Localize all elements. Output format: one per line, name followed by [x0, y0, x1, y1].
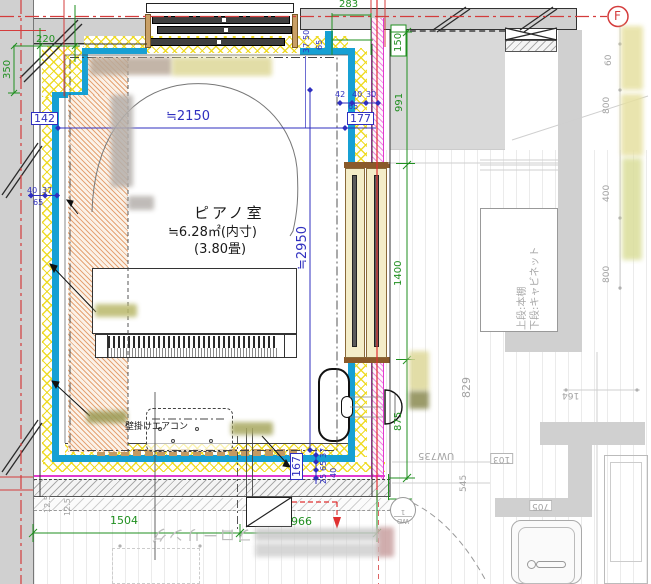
window-notch-2 [224, 28, 228, 32]
dim-164: 164 [562, 390, 579, 399]
blurred-label [255, 543, 381, 557]
insulation-topleft-step [42, 46, 84, 97]
ac-dot-2 [171, 439, 175, 443]
faint-fixture [112, 548, 200, 584]
dim-65: 65 [348, 103, 358, 111]
dim-1504: 1504 [110, 515, 138, 526]
dim-800: 800 [603, 97, 612, 114]
dim-37: 37 [303, 43, 311, 53]
window-cap-right [292, 14, 298, 48]
neighbor-wall-bottom-hatch [34, 479, 390, 497]
shelf-lower-label: 下段:キャビネット [529, 247, 542, 330]
wallfinish-bottom [52, 455, 355, 462]
blurred-label [622, 158, 642, 260]
dim-37: 37 [42, 187, 52, 195]
blurred-label [621, 26, 643, 90]
dim-65: 65 [320, 461, 328, 471]
insulation-right-lower [355, 363, 367, 457]
door-leaf-2-panel [374, 175, 379, 347]
ac-label: 壁掛けエアコン [125, 423, 188, 432]
window-notch-1 [222, 18, 226, 22]
blurred-label [231, 422, 273, 435]
dim-350: 350 [3, 60, 13, 79]
dim-167: 167 [290, 453, 303, 480]
room-name: ピアノ室 [194, 206, 265, 221]
room-tatami: (3.80畳) [194, 243, 246, 256]
dim-875: 875 [394, 412, 404, 431]
blurred-label [172, 57, 272, 76]
blurred-label [128, 196, 154, 210]
dim-991: 991 [395, 93, 405, 112]
flooring-label: フローリング [150, 527, 252, 542]
door-tag-number: 1 [391, 508, 415, 516]
blurred-label [95, 304, 137, 317]
dim-25: 25 [320, 474, 328, 484]
blurred-label [409, 391, 429, 409]
dim-103: 103 [490, 453, 513, 464]
window-top-track [146, 3, 294, 13]
dim-12-5: 12.5 [64, 498, 72, 516]
window-cap-left [145, 14, 151, 48]
blurred-label [90, 57, 172, 75]
dim-2950: ≒2950 [296, 226, 309, 270]
ac-dot-3 [195, 427, 199, 431]
dim-12-5: 12.5 [44, 495, 52, 513]
blurred-label [378, 527, 394, 557]
window-sash-1 [152, 16, 290, 24]
wall-kitchen-a [540, 422, 645, 445]
dim-966: 966 [291, 516, 312, 527]
blurred-label [87, 411, 127, 423]
dim-30: 30 [366, 91, 376, 99]
column-hatch [505, 40, 557, 52]
wallfinish-jamb [325, 31, 333, 51]
ac-dot-4 [209, 439, 213, 443]
blurred-label [409, 351, 429, 391]
vent-box [246, 497, 292, 527]
dim-705: 705 [529, 500, 552, 511]
fixture-right-inner [610, 462, 642, 562]
bathtub-inner [518, 527, 575, 584]
door-tag-code: WD [394, 516, 412, 525]
dim-283: 283 [339, 0, 358, 10]
floor-plan: WD 1 [0, 0, 651, 584]
column-xbox [505, 28, 557, 40]
room-area: ≒6.28㎡(内寸) [168, 226, 257, 239]
wall-kitchen-b [568, 445, 592, 500]
dim-40: 40 [352, 91, 362, 99]
dim-40: 40 [330, 468, 338, 478]
wall-topright-band [300, 8, 577, 30]
dim-65: 65 [316, 40, 324, 50]
window-notch-3 [217, 40, 221, 44]
piano-body [92, 268, 297, 334]
piano-keys-white [108, 348, 278, 357]
grid-mark-f: F [614, 10, 621, 22]
dim-37: 37 [320, 448, 328, 458]
wallfinish-left [52, 92, 59, 462]
door-tag: WD 1 [390, 497, 416, 523]
dim-400: 400 [603, 185, 612, 202]
dim-545: 545 [460, 475, 469, 492]
dim-uw735: UW735 [418, 450, 454, 460]
piano-key-block-right [284, 334, 297, 358]
exterior-hatch-band [34, 498, 390, 511]
dim-150: 150 [394, 33, 404, 52]
wall-right-block [390, 30, 505, 150]
dim-1400: 1400 [394, 261, 404, 286]
dim-40: 40 [27, 187, 37, 195]
dim-177: 177 [347, 112, 374, 125]
wallfinish-step-h [82, 48, 147, 54]
dim-829: 829 [461, 377, 472, 398]
dim-800: 800 [603, 266, 612, 283]
insulation-left [42, 97, 52, 462]
wall-step [505, 332, 582, 352]
dim-60: 60 [605, 55, 614, 66]
stool-inner [341, 396, 353, 418]
dim-65: 65 [33, 199, 43, 207]
dim-142: 142 [31, 112, 58, 125]
wall-left-column [0, 0, 34, 584]
faucet-knob [527, 560, 536, 569]
dim-42: 42 [335, 91, 345, 99]
piano-key-block-left [95, 334, 108, 358]
dim-2150: ≒2150 [166, 110, 210, 123]
wall-right-column [558, 30, 582, 352]
faucet [536, 561, 566, 568]
dim-50: 50 [303, 30, 311, 40]
blurred-label [255, 528, 381, 541]
door-leaf-1-panel [352, 175, 357, 347]
blurred-label [111, 95, 133, 187]
blurred-label [621, 94, 643, 156]
shelf-upper-label: 上段:本棚 [516, 247, 529, 330]
piano-keys-black [108, 336, 278, 348]
shelf-note: 上段:本棚 下段:キャビネット [516, 247, 542, 330]
dim-220: 220 [36, 35, 55, 45]
